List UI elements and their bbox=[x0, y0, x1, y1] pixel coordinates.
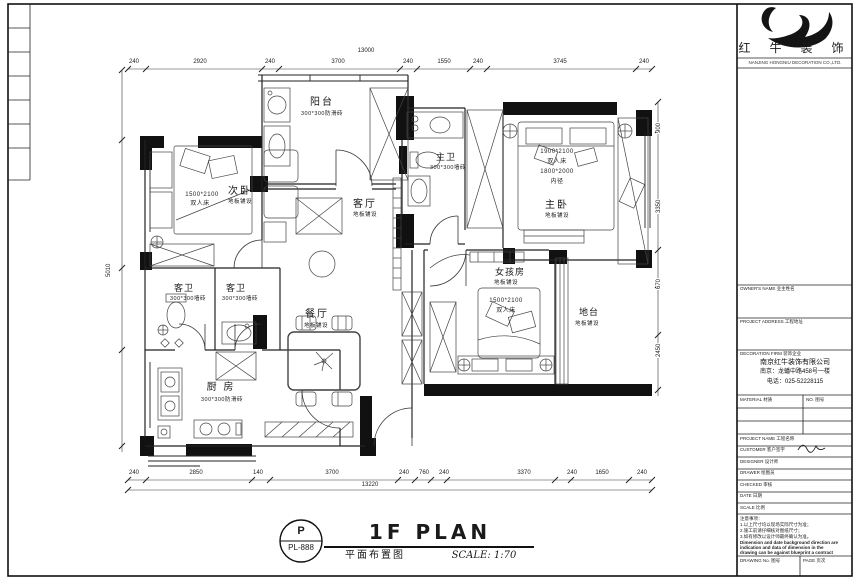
room-sub-balcony: 300*300防滑砖 bbox=[301, 112, 343, 118]
room-sub-kitchen: 300*300防滑砖 bbox=[201, 398, 243, 404]
row-date: DATE 日期 bbox=[740, 494, 762, 499]
dim-bottom-6: 240 bbox=[438, 470, 450, 476]
dim-right-0: 900 bbox=[656, 122, 662, 134]
note-master-inner-size: 1800*2000 bbox=[540, 169, 574, 175]
dim-left-total: 5010 bbox=[106, 263, 112, 278]
dim-bottom-10: 240 bbox=[636, 470, 648, 476]
no-label: NO. 图号 bbox=[806, 398, 824, 403]
notes-title: 注意事项： bbox=[740, 517, 763, 522]
dim-top-total: 13000 bbox=[357, 48, 376, 54]
plan-title-cn: 平面布置图 bbox=[345, 551, 405, 561]
dim-top-5: 1550 bbox=[436, 59, 451, 65]
plan-bubble-letter: P bbox=[297, 526, 304, 537]
room-sub-dining: 地板铺设 bbox=[304, 324, 328, 330]
room-sub-master-bath: 300*300墙砖 bbox=[430, 166, 466, 172]
dim-bottom-total: 13220 bbox=[361, 482, 380, 488]
room-label-second-bedroom: 次卧 bbox=[228, 187, 252, 197]
dim-top-3: 3700 bbox=[330, 59, 345, 65]
dim-bottom-3: 3700 bbox=[324, 470, 339, 476]
dim-top-0: 240 bbox=[128, 59, 140, 65]
drawing-sheet: 红 牛 装 饰 NANJING HONGNIU DECORATION CO.,L… bbox=[0, 0, 860, 580]
plan-title-en: 1F PLAN bbox=[369, 522, 491, 542]
room-sub-guest-bath-2: 300*300墙砖 bbox=[222, 297, 258, 303]
company-name: 南京红牛装饰有限公司 bbox=[760, 359, 830, 366]
note-girl-bed-size: 1500*2100 bbox=[489, 298, 523, 304]
titleblock-address-label: PROJECT ADDRESS 工程地址 bbox=[740, 320, 803, 325]
logo-tagline: NANJING HONGNIU DECORATION CO.,LTD. bbox=[748, 61, 841, 66]
dim-top-7: 3745 bbox=[552, 59, 567, 65]
row-drawer: DRAWER 绘图员 bbox=[740, 471, 775, 476]
room-label-master-bedroom: 主卧 bbox=[545, 201, 569, 211]
note-master-bed: 双人床 bbox=[547, 159, 567, 165]
page-label: PAGE 页次 bbox=[803, 559, 825, 564]
plan-scale: SCALE: 1:70 bbox=[452, 551, 517, 561]
row-designer: DESIGNER 设计师 bbox=[740, 460, 778, 465]
dim-top-6: 240 bbox=[472, 59, 484, 65]
room-label-guest-bath-2: 客卫 bbox=[226, 284, 246, 293]
logo-company-name: 红 牛 装 饰 bbox=[738, 42, 851, 54]
dim-top-1: 2920 bbox=[192, 59, 207, 65]
room-label-dining: 餐厅 bbox=[305, 310, 329, 320]
dim-bottom-8: 240 bbox=[566, 470, 578, 476]
company-address: 南京：龙蟠中路458号一楼 bbox=[760, 369, 830, 375]
room-sub-platform: 地板铺设 bbox=[575, 322, 599, 328]
dim-right-1: 3350 bbox=[656, 199, 662, 214]
room-label-platform: 地台 bbox=[579, 308, 599, 317]
titleblock-firm-label: DECORATION FIRM 装饰企业 bbox=[740, 352, 801, 357]
room-sub-second-bedroom: 地板铺设 bbox=[228, 200, 252, 206]
room-label-master-bath: 主卫 bbox=[436, 153, 456, 162]
titleblock-owner-label: OWNER'S NAME 业主姓名 bbox=[740, 287, 795, 292]
company-phone: 电话：025-52228115 bbox=[767, 379, 823, 385]
dim-bottom-4: 240 bbox=[398, 470, 410, 476]
room-sub-girl-room: 地板铺设 bbox=[494, 281, 518, 287]
note-second-bedroom-bed: 双人床 bbox=[190, 201, 210, 207]
dim-bottom-2: 140 bbox=[252, 470, 264, 476]
room-label-balcony: 阳台 bbox=[310, 98, 334, 108]
dim-bottom-1: 2850 bbox=[188, 470, 203, 476]
plan-linework bbox=[0, 0, 860, 580]
room-label-guest-bath-1: 客卫 bbox=[174, 284, 194, 293]
note-girl-bed: 双人床 bbox=[496, 308, 516, 314]
room-label-living: 客厅 bbox=[353, 200, 377, 210]
row-project-name: PROJECT NAME 工程名称 bbox=[740, 437, 794, 442]
note-second-bedroom-size: 1500*2100 bbox=[185, 192, 219, 198]
row-scale: SCALE 比例 bbox=[740, 506, 765, 511]
row-checked: CHECKED 审核 bbox=[740, 483, 772, 488]
dim-right-2: 670 bbox=[656, 278, 662, 290]
drawing-no-label: DRAWING No. 图号 bbox=[740, 559, 780, 564]
dim-bottom-5: 760 bbox=[418, 470, 430, 476]
plan-bubble-code: PL-888 bbox=[288, 544, 314, 552]
dim-bottom-7: 3370 bbox=[516, 470, 531, 476]
note-master-bed-size: 1900*2100 bbox=[540, 149, 574, 155]
row-customer: CUSTOMER 客户签字 bbox=[740, 448, 785, 453]
room-sub-living: 地板铺设 bbox=[353, 213, 377, 219]
dim-top-8: 240 bbox=[638, 59, 650, 65]
room-sub-master-bedroom: 地板铺设 bbox=[545, 214, 569, 220]
notes-cn-1: 1.以上尺寸均以现场实际尺寸为准； bbox=[740, 523, 811, 528]
dim-top-2: 240 bbox=[264, 59, 276, 65]
dim-top-4: 240 bbox=[402, 59, 414, 65]
note-master-inner: 内径 bbox=[550, 179, 563, 185]
material-label: MATERIAL 材质 bbox=[740, 398, 772, 403]
dim-right-3: 2450 bbox=[656, 343, 662, 358]
notes-cn-3: 3.如有修改以设计师最终确认为准。 bbox=[740, 535, 811, 540]
notes-cn-2: 2.施工前请仔细核对图纸尺寸； bbox=[740, 529, 802, 534]
notes-en-3: drawing can be against blueprint a contr… bbox=[740, 551, 833, 556]
room-label-kitchen: 厨 房 bbox=[207, 383, 236, 393]
room-sub-guest-bath-1: 300*300墙砖 bbox=[170, 297, 206, 303]
revision-strip bbox=[8, 4, 30, 180]
room-label-girl-room: 女孩房 bbox=[495, 268, 525, 277]
dim-bottom-0: 240 bbox=[128, 470, 140, 476]
dim-bottom-9: 1650 bbox=[594, 470, 609, 476]
